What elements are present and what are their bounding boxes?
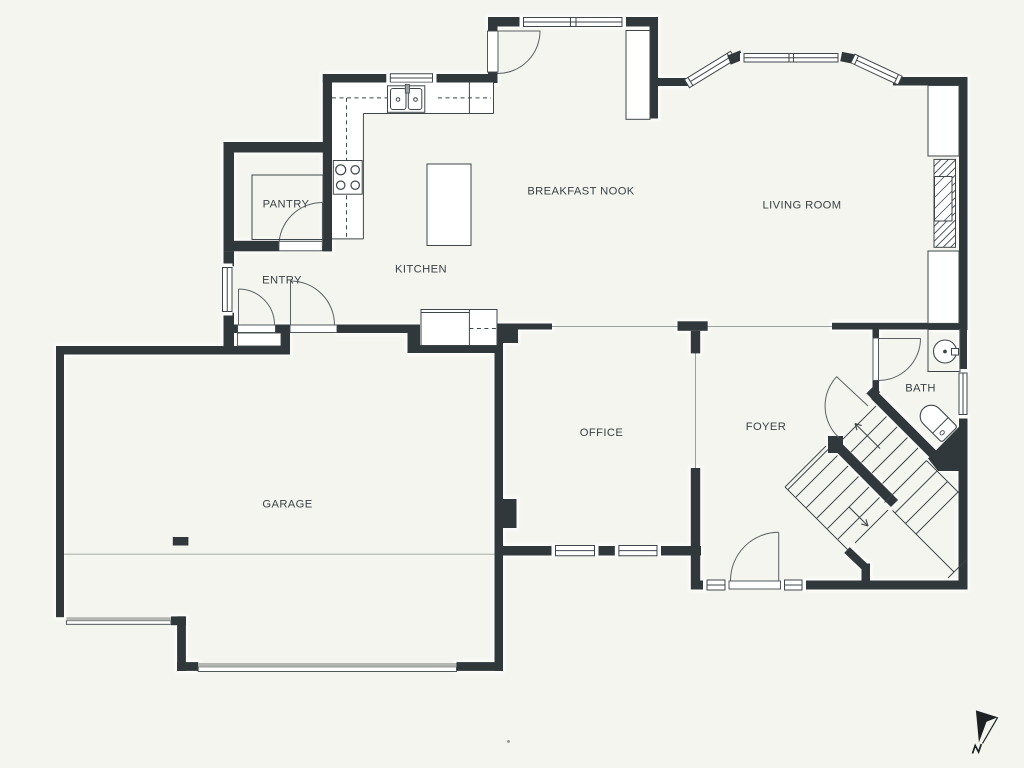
svg-text:LIVING ROOM: LIVING ROOM [763, 200, 842, 212]
svg-text:FOYER: FOYER [746, 421, 787, 433]
svg-text:BATH: BATH [905, 383, 936, 395]
svg-text:BREAKFAST NOOK: BREAKFAST NOOK [527, 186, 634, 198]
svg-text:KITCHEN: KITCHEN [395, 264, 447, 276]
svg-text:GARAGE: GARAGE [262, 499, 312, 511]
svg-text:OFFICE: OFFICE [580, 427, 623, 439]
svg-text:PANTRY: PANTRY [263, 199, 310, 211]
svg-text:ENTRY: ENTRY [262, 275, 302, 287]
